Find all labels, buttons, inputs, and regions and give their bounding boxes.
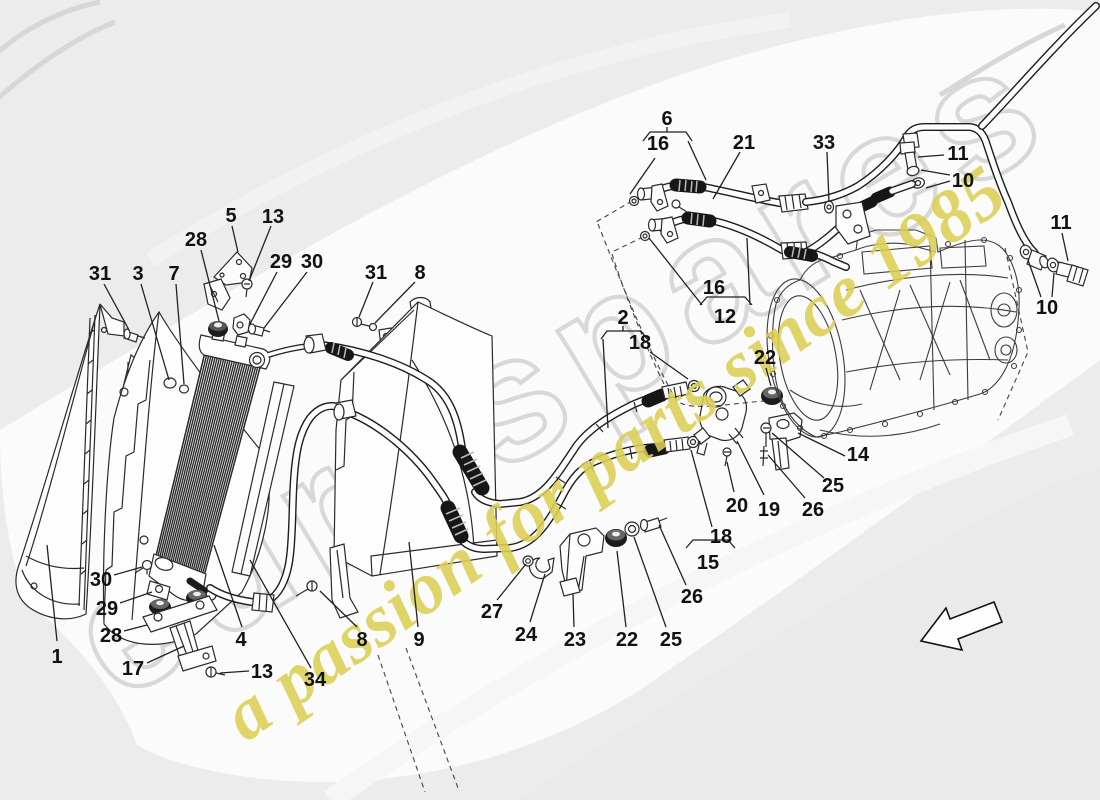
svg-text:25: 25	[660, 629, 682, 651]
svg-text:9: 9	[413, 629, 424, 651]
svg-text:27: 27	[481, 601, 503, 623]
svg-text:1: 1	[51, 646, 62, 668]
svg-text:13: 13	[262, 206, 284, 228]
svg-text:26: 26	[681, 586, 703, 608]
svg-text:10: 10	[1036, 297, 1058, 319]
svg-text:30: 30	[90, 569, 112, 591]
svg-text:18: 18	[629, 332, 651, 354]
svg-text:24: 24	[515, 624, 538, 646]
svg-text:28: 28	[100, 625, 122, 647]
svg-text:25: 25	[822, 475, 844, 497]
svg-text:13: 13	[251, 661, 273, 683]
svg-text:31: 31	[89, 263, 111, 285]
svg-text:10: 10	[952, 170, 974, 192]
svg-text:3: 3	[132, 263, 143, 285]
svg-text:28: 28	[185, 229, 207, 251]
svg-text:17: 17	[122, 658, 144, 680]
svg-text:2: 2	[617, 307, 628, 329]
svg-text:29: 29	[270, 251, 292, 273]
svg-text:23: 23	[564, 629, 586, 651]
svg-text:7: 7	[168, 263, 179, 285]
svg-text:8: 8	[414, 262, 425, 284]
svg-text:15: 15	[697, 552, 719, 574]
svg-text:4: 4	[235, 629, 247, 651]
svg-text:16: 16	[647, 133, 669, 155]
svg-text:33: 33	[813, 132, 835, 154]
svg-text:6: 6	[661, 108, 672, 130]
svg-text:18: 18	[710, 526, 732, 548]
svg-text:34: 34	[304, 669, 327, 691]
svg-text:29: 29	[96, 598, 118, 620]
svg-text:11: 11	[947, 143, 968, 165]
svg-text:21: 21	[733, 132, 755, 154]
svg-text:11: 11	[1050, 212, 1071, 234]
svg-text:22: 22	[616, 629, 638, 651]
svg-text:12: 12	[714, 306, 736, 328]
svg-text:16: 16	[703, 277, 725, 299]
svg-text:5: 5	[225, 205, 236, 227]
svg-text:30: 30	[301, 251, 323, 273]
svg-text:20: 20	[726, 495, 748, 517]
svg-text:19: 19	[758, 499, 780, 521]
svg-text:14: 14	[847, 444, 870, 466]
svg-text:26: 26	[802, 499, 824, 521]
svg-text:22: 22	[754, 347, 776, 369]
svg-text:31: 31	[365, 262, 387, 284]
svg-text:8: 8	[356, 629, 367, 651]
